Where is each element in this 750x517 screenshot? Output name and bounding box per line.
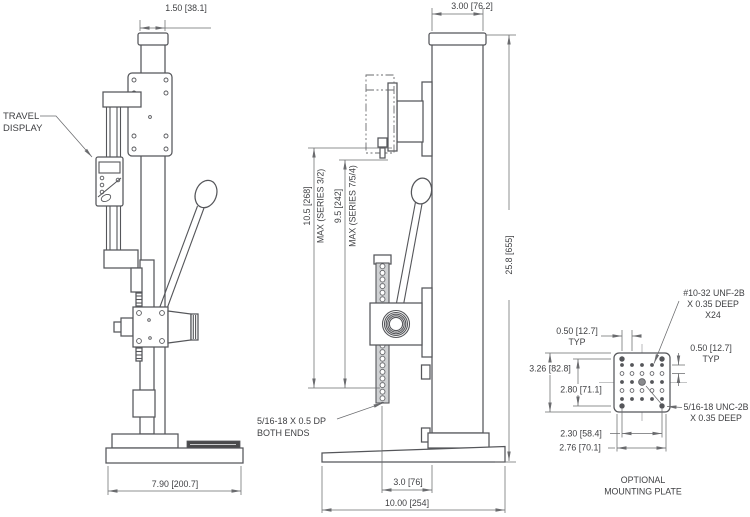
hole-cols-dimension: 2.30 [58.4] (560, 409, 662, 439)
travel-display-callout: TRAVEL DISPLAY (3, 111, 92, 157)
pitch-left-typ-text: TYP (568, 337, 585, 347)
grid-tap-note-1: #10-32 UNF-2B (683, 288, 745, 298)
front-base-width-dimension: 7.90 [200.7] (108, 466, 241, 495)
corner-tap-note-2: X 0.35 DEEP (690, 413, 742, 423)
travel-display-label-1: TRAVEL (3, 111, 39, 122)
front-column-width-dimension: 1.50 [38.1] (140, 3, 211, 31)
throat-depth-dim-text: 3.0 [76] (393, 477, 422, 487)
plate-height-dimension: 3.26 [82.8] (526, 353, 611, 412)
grid-tap-note-3: X24 (705, 310, 721, 320)
pinion-housing (168, 311, 191, 343)
pitch-right-dim-text: 0.50 [12.7] (690, 343, 732, 353)
rack-thread-note-2: BOTH ENDS (257, 428, 310, 438)
pitch-dimension-left: 0.50 [12.7] TYP (556, 326, 641, 351)
plate-caption-1: OPTIONAL (621, 475, 666, 485)
gauge-mounting-bracket (388, 82, 432, 156)
display-button (100, 176, 104, 180)
grid-tap-note-2: X 0.35 DEEP (687, 299, 739, 309)
technical-drawing: TRAVEL DISPLAY 1.50 [38.1] 7.90 [200.7] (0, 0, 750, 517)
side-base-depth-dimension: 10.00 [254] (322, 466, 505, 513)
travel-series-32-dim-text: 10.5 [268] (302, 186, 312, 225)
front-carriage (114, 307, 198, 347)
front-face-plate (128, 73, 172, 156)
coupling-stud-upper (136, 293, 142, 306)
side-column-front-plate (422, 288, 433, 442)
plate-height-dim-text: 3.26 [82.8] (529, 364, 571, 374)
travel-display (96, 157, 123, 206)
front-base (106, 434, 243, 463)
corner-tap-callout: 5/16-18 UNC-2B X 0.35 DEEP (667, 402, 749, 423)
rack-thread-note-1: 5/16-18 X 0.5 DP (257, 416, 326, 426)
gauge-hook (378, 138, 387, 147)
travel-display-leader (40, 116, 92, 157)
overall-height-dimension: 25.8 [655] (486, 35, 516, 462)
travel-display-label-2: DISPLAY (3, 123, 43, 134)
overall-height-dim-text: 25.8 [655] (504, 235, 514, 274)
front-base-width-dim-text: 7.90 [200.7] (152, 479, 198, 489)
side-column (429, 33, 486, 433)
side-base (322, 433, 505, 462)
front-lever-handle (160, 177, 221, 310)
rack-thread-leader (337, 403, 383, 419)
plate-center-hole (639, 379, 646, 386)
side-column-depth-dim-text: 3.00 [76.2] (451, 1, 493, 11)
outer-span-dim-text: 2.76 [70.1] (559, 443, 601, 453)
hole-rows-dim-text: 2.80 [71.1] (560, 385, 602, 395)
side-base-depth-dim-text: 10.00 [254] (385, 498, 429, 508)
corner-tap-note-1: 5/16-18 UNC-2B (683, 402, 748, 412)
front-column-width-dim-text: 1.50 [38.1] (165, 3, 207, 13)
display-button (100, 183, 104, 187)
pitch-dimension-right: 0.50 [12.7] TYP (672, 343, 732, 386)
plate-caption-2: MOUNTING PLATE (604, 487, 682, 497)
side-carriage (370, 303, 422, 345)
travel-series-32-note-text: MAX (SERIES 3/2) (316, 169, 326, 243)
hole-cols-dim-text: 2.30 [58.4] (560, 429, 602, 439)
rack-thread-callout: 5/16-18 X 0.5 DP BOTH ENDS (257, 403, 383, 438)
front-view: TRAVEL DISPLAY 1.50 [38.1] 7.90 [200.7] (3, 3, 243, 495)
travel-series-754-dim-text: 9.5 [242] (333, 189, 343, 223)
mounting-plate-detail: 0.50 [12.7] TYP 0.50 [12.7] TYP 3.26 [82… (526, 288, 749, 497)
travel-series-754-note-text: MAX (SERIES 7/5/4) (348, 165, 358, 247)
side-view: 3.00 [76.2] 25.8 [655] 10.5 [268] MAX (S… (257, 1, 516, 513)
pitch-left-dim-text: 0.50 [12.7] (556, 326, 598, 336)
plate-caption: OPTIONAL MOUNTING PLATE (604, 475, 682, 497)
drawing-page: TRAVEL DISPLAY 1.50 [38.1] 7.90 [200.7] (0, 0, 750, 517)
pitch-right-typ-text: TYP (702, 354, 719, 364)
side-column-depth-dimension: 3.00 [76.2] (432, 1, 493, 31)
gauge-hook (380, 148, 385, 158)
coupling-stud-lower (136, 348, 142, 361)
